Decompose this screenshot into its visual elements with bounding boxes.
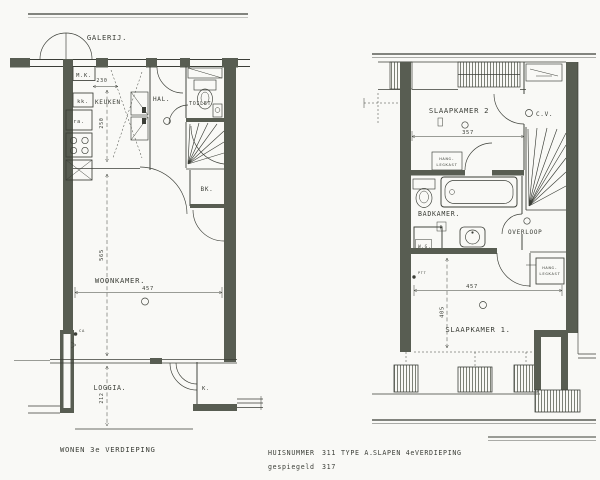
service-pipes [578, 354, 596, 358]
ceiling-point [142, 298, 149, 305]
svg-text:457: 457 [466, 284, 478, 290]
balustrade [535, 390, 580, 412]
svg-text:LEGKAST: LEGKAST [436, 162, 457, 167]
badkamer: BADKAMER. R W.G. [400, 176, 522, 254]
gallery-double-door-arc [40, 33, 92, 59]
worktop-guide [111, 70, 142, 158]
svg-text:CA: CA [79, 328, 85, 333]
balcony-door-frame [534, 330, 568, 390]
badkamer-label: BADKAMER. [418, 210, 460, 218]
dim-slaapkamer1-breedte: 457 [414, 284, 562, 296]
galerij-label: GALERIJ. [87, 33, 127, 42]
gespiegeld-value: 317 [322, 463, 336, 471]
woonkamer-label: WOONKAMER. [95, 276, 145, 285]
svg-text:HANG-: HANG- [542, 265, 557, 270]
dim-loggia-diepte: 212 [99, 366, 107, 426]
hal-label: HAL. [153, 96, 170, 103]
badkamer-door-arc [465, 143, 492, 170]
caption-block: WONEN 3e VERDIEPING HUISNUMMER 311 TYPE … [60, 445, 462, 471]
dim-woonkamer-diepte: 565 [99, 174, 107, 356]
light-point [524, 218, 530, 224]
svg-text:357: 357 [462, 130, 474, 136]
vent-box [526, 64, 562, 81]
dim-slaapkamer1-diepte: 405 [440, 258, 448, 348]
entrance-door-arc [157, 67, 183, 93]
kk-label: kk. [77, 99, 89, 105]
huisnummer-value: 311 [322, 449, 336, 457]
stairs-icon [526, 127, 566, 210]
stairs-icon [186, 122, 224, 168]
loggia-door-arc [170, 363, 197, 390]
svg-text:230: 230 [96, 78, 107, 84]
service-pipes [237, 396, 263, 410]
ra-label: ra. [73, 119, 84, 125]
plan-slapen: SLAAPKAMER 2 357 HANG- LEGKAST C.V. [364, 54, 596, 441]
cv-door-arc [494, 94, 524, 124]
radiator [394, 365, 418, 392]
bk-label: BK. [201, 186, 214, 193]
keuken: kk. KEUKEN ra. [66, 67, 150, 181]
dim-woonkamer-breedte: 457 [75, 286, 222, 298]
toilet-label: TOILET [189, 101, 211, 107]
slaapkamer2-label: SLAAPKAMER 2 [429, 106, 489, 115]
boiler-point [526, 110, 533, 117]
svg-text:HANG-: HANG- [439, 156, 454, 161]
type-value: TYPE A. [341, 449, 374, 457]
svg-text:457: 457 [142, 286, 154, 292]
cv-label: C.V. [536, 111, 553, 118]
galerij-zone: GALERIJ. [10, 14, 250, 93]
washbasin-icon [460, 227, 485, 247]
bathtub-icon [441, 177, 517, 207]
ceiling-point [462, 122, 468, 128]
slapen-caption: SLAPEN 4eVERDIEPING [373, 449, 462, 457]
meterkast: M.K. [73, 67, 95, 81]
cabinet-column [131, 92, 148, 140]
overloop: OVERLOOP [508, 218, 566, 252]
toilet-room: TOILET [186, 67, 224, 123]
svg-text:212: 212 [99, 392, 105, 403]
loggia-label: LOGGIA. [94, 384, 127, 392]
keuken-label: KEUKEN [95, 99, 121, 106]
wonen-caption: WONEN 3e VERDIEPING [60, 445, 156, 454]
svg-text:250: 250 [99, 117, 105, 128]
hang-legkast: HANG- LEGKAST [526, 258, 564, 284]
shelf [188, 68, 222, 78]
ptt-outlet: PTT [412, 271, 426, 279]
radiator [458, 367, 492, 392]
svg-text:565: 565 [99, 249, 105, 261]
slaapkamer1-door-arc [497, 253, 530, 286]
kast-label: K. [202, 386, 210, 392]
plan-wonen: GALERIJ. M.K. [10, 14, 263, 429]
toilet-door-arc [169, 105, 188, 124]
berging-bk: BK. [186, 169, 224, 241]
slaapkamer1-label: SLAAPKAMER 1. [445, 325, 510, 334]
svg-text:PTT: PTT [418, 271, 427, 275]
overloop-label: OVERLOOP [508, 229, 543, 236]
toilet-icon [413, 179, 435, 208]
loggia: LOGGIA. 212 K. [14, 358, 263, 429]
bk-door-arc [193, 210, 224, 241]
floorplan-sheet: GALERIJ. M.K. [0, 0, 600, 480]
hang-legkast: HANG- LEGKAST [432, 152, 462, 170]
loggia-door-arc [176, 363, 197, 384]
svg-text:LEGKAST: LEGKAST [539, 271, 560, 276]
svg-text:405: 405 [440, 306, 446, 318]
slaapkamer-2: SLAAPKAMER 2 357 HANG- LEGKAST [411, 106, 524, 176]
radiator-mark [438, 118, 443, 126]
dim-slaapkamer2-breedte: 357 [412, 130, 524, 141]
basin-icon [213, 104, 222, 117]
dim-extension [364, 93, 399, 125]
woonkamer: WOONKAMER. 457 565 CA [71, 174, 222, 356]
woonkamer-door-arc [140, 167, 187, 214]
mk-label: M.K. [76, 73, 92, 79]
huisnummer-label: HUISNUMMER [268, 449, 315, 457]
gespiegeld-label: gespiegeld [268, 463, 315, 471]
ceiling-point [480, 302, 487, 309]
